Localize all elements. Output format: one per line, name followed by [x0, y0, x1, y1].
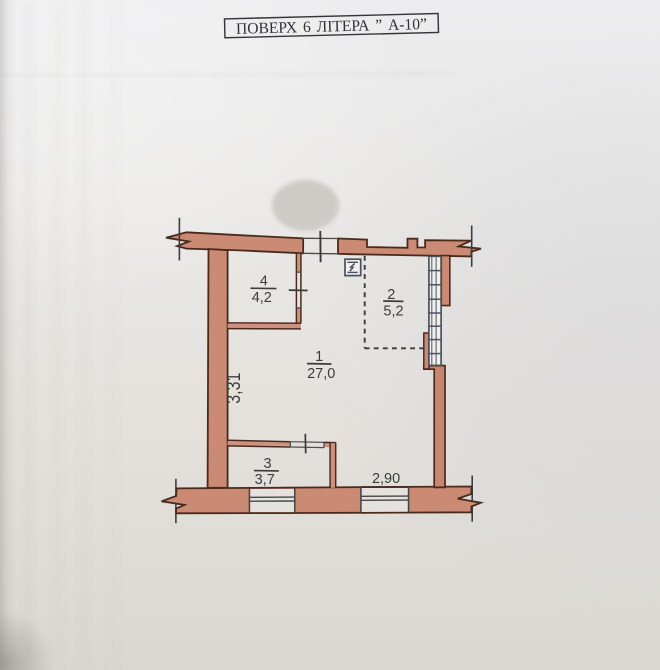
- svg-text:5,2: 5,2: [383, 304, 403, 320]
- svg-text:3: 3: [263, 456, 271, 472]
- svg-text:2,90: 2,90: [372, 471, 400, 487]
- svg-text:3,7: 3,7: [255, 472, 275, 488]
- svg-text:1: 1: [315, 349, 323, 365]
- svg-text:4: 4: [260, 274, 268, 290]
- svg-text:3,31: 3,31: [223, 373, 245, 404]
- svg-text:4,2: 4,2: [252, 290, 272, 306]
- svg-text:27,0: 27,0: [307, 366, 335, 382]
